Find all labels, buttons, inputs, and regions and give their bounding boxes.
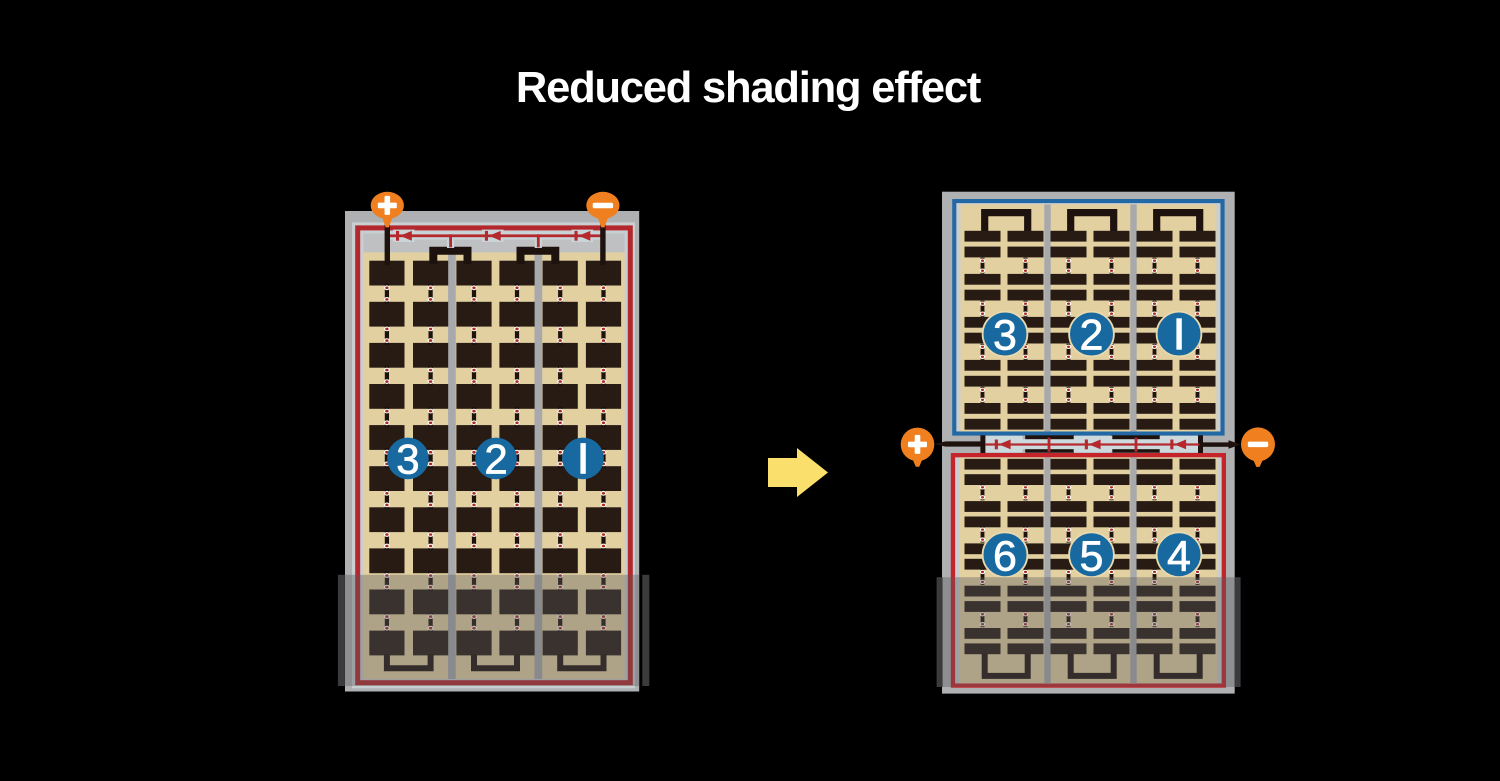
svg-text:3: 3 <box>993 312 1017 360</box>
svg-text:2: 2 <box>484 436 507 483</box>
svg-text:3: 3 <box>396 436 419 483</box>
svg-text:2: 2 <box>1080 312 1104 360</box>
svg-text:6: 6 <box>993 532 1017 580</box>
svg-text:Reduced shading effect: Reduced shading effect <box>516 64 981 112</box>
svg-text:5: 5 <box>1080 532 1104 580</box>
svg-text:4: 4 <box>1167 532 1191 580</box>
